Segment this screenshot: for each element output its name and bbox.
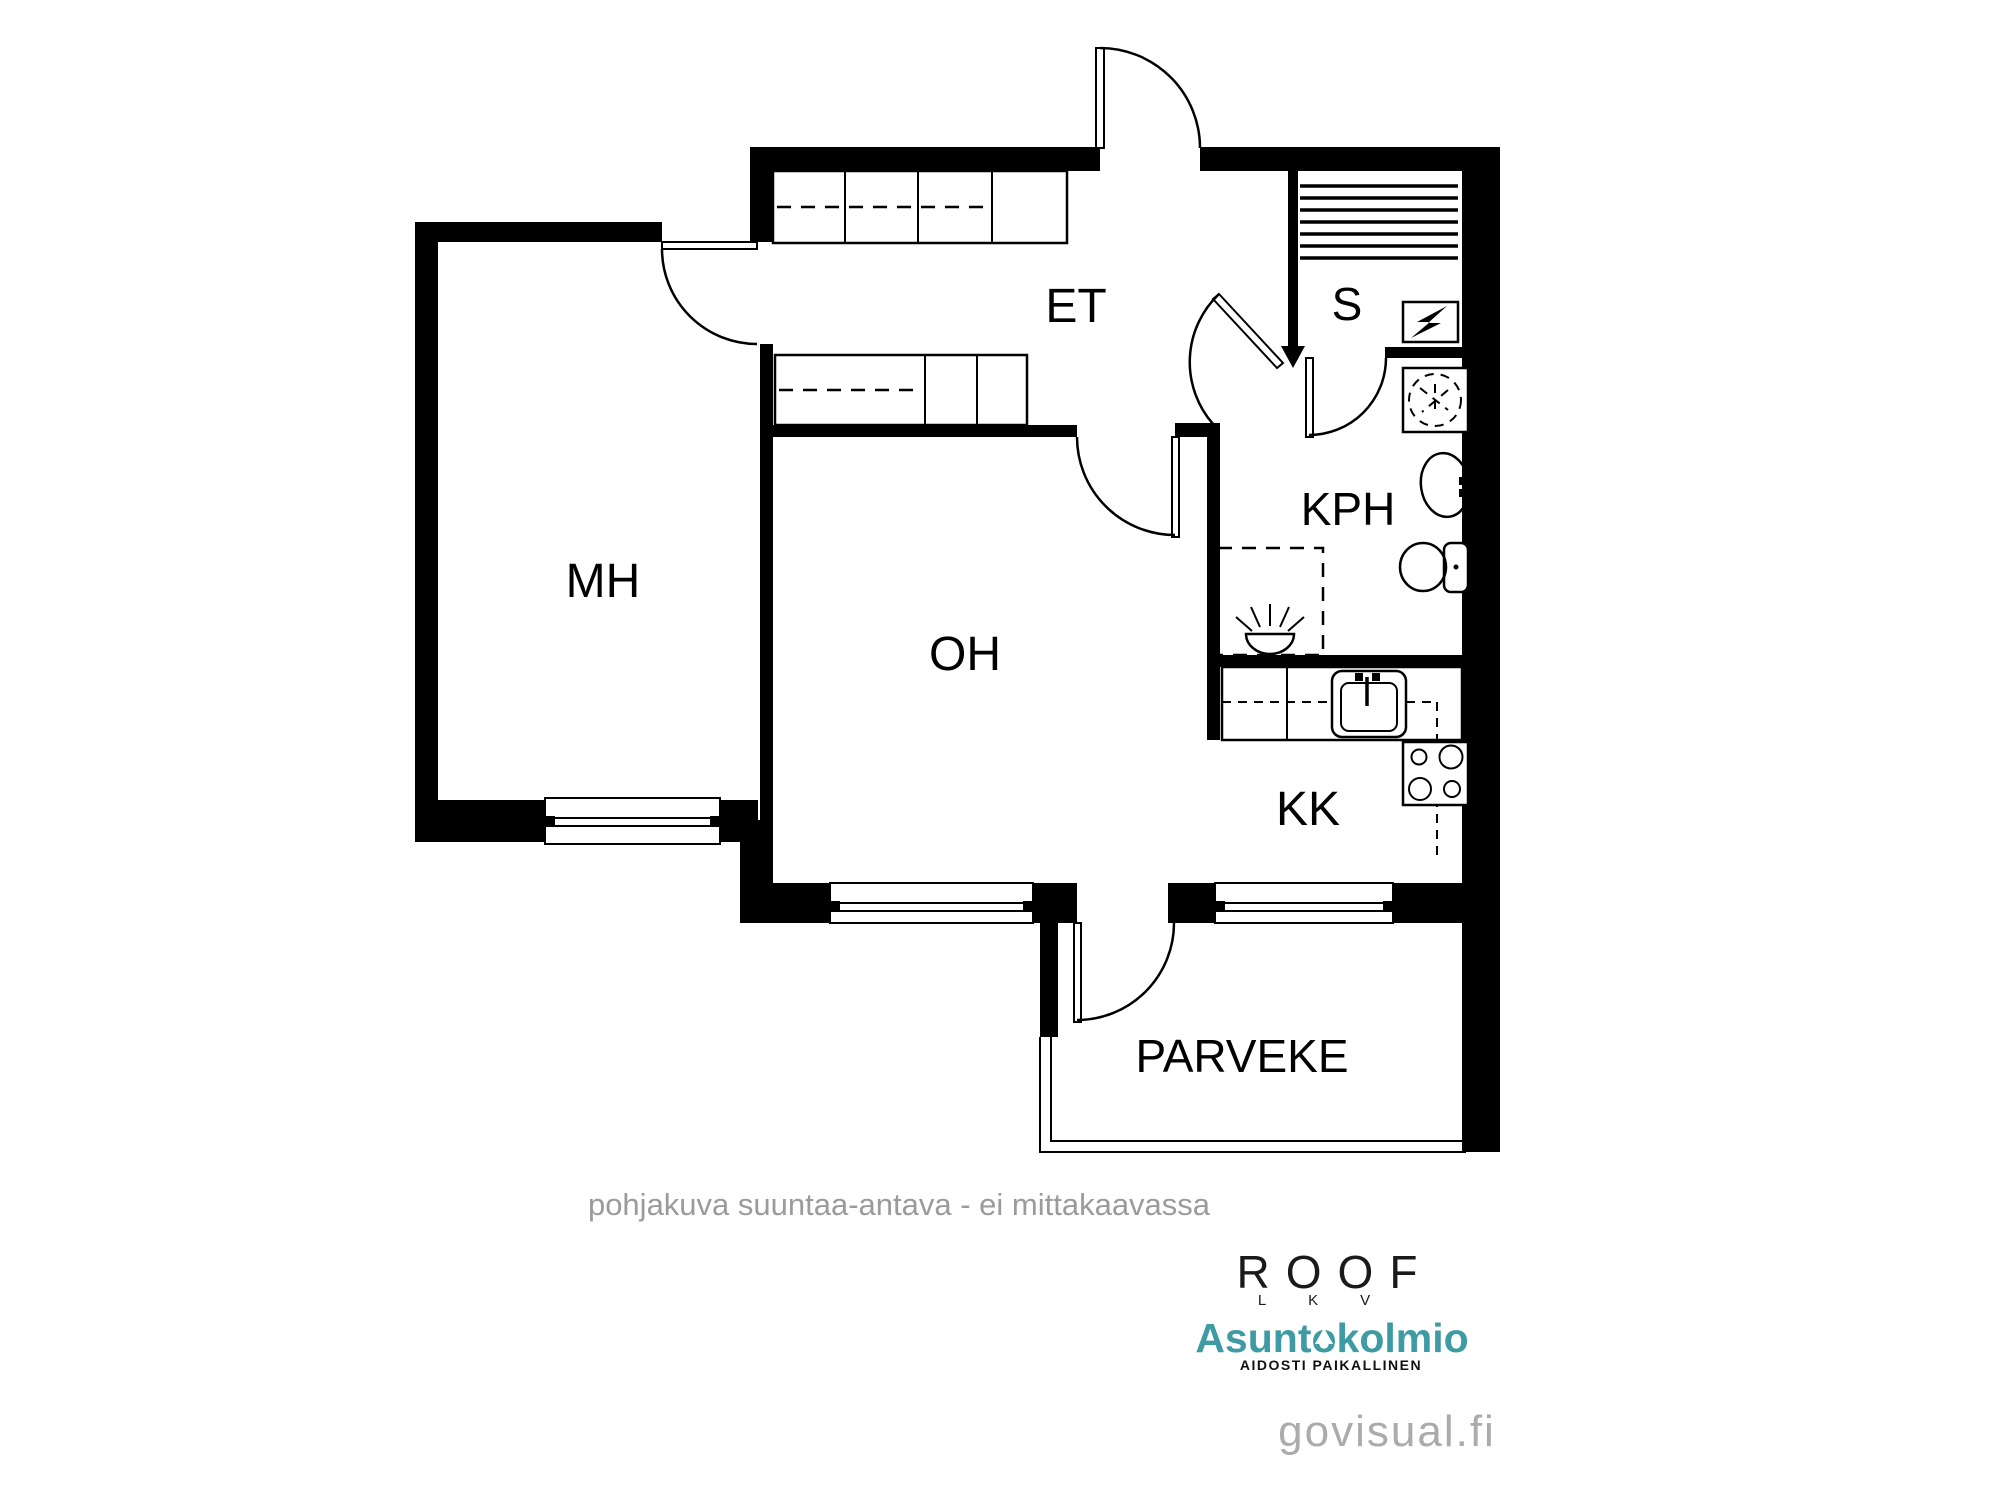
washing-machine-icon	[1403, 368, 1468, 432]
sauna-heater-icon	[1403, 302, 1458, 342]
door-kph	[1190, 294, 1283, 424]
floorplan-page: MH OH ET S KPH KK PARVEKE pohjakuva suun…	[0, 0, 2000, 1500]
room-label-oh: OH	[929, 628, 1001, 681]
watermark-text: govisual.fi	[1278, 1407, 1496, 1456]
room-label-kk: KK	[1276, 783, 1340, 836]
roof-logo-name: ROOF	[1237, 1246, 1434, 1298]
room-label-mh: MH	[566, 555, 641, 608]
roof-logo-sub: LKV	[1258, 1292, 1412, 1309]
room-label-kph: KPH	[1301, 483, 1396, 535]
door-balcony	[1074, 923, 1174, 1022]
kitchen-sink-icon	[1332, 671, 1406, 737]
disclaimer-text: pohjakuva suuntaa-antava - ei mittakaava…	[588, 1187, 1211, 1222]
room-label-s: S	[1332, 278, 1363, 330]
asuntokolmio-logo: Asuntokolmio AIDOSTI PAIKALLINEN	[1195, 1315, 1468, 1373]
shower-icon	[1218, 548, 1323, 655]
roof-logo: ROOF LKV	[1237, 1246, 1434, 1309]
door-mh	[662, 242, 757, 344]
stove-icon	[1403, 742, 1468, 805]
toilet-icon	[1400, 543, 1468, 592]
wall-stub-miter	[1281, 346, 1305, 368]
room-label-parveke: PARVEKE	[1135, 1030, 1348, 1082]
room-label-et: ET	[1045, 280, 1106, 333]
door-oh	[1077, 437, 1179, 537]
window-oh	[830, 883, 1033, 923]
entrance-door	[1096, 48, 1200, 148]
floor-plan-canvas: MH OH ET S KPH KK PARVEKE pohjakuva suun…	[0, 0, 2000, 1500]
window-mh	[545, 798, 720, 844]
closet-row-top	[773, 171, 1067, 243]
closet-row-lower	[775, 355, 1027, 425]
asuntokolmio-logo-text: Asuntokolmio	[1195, 1315, 1468, 1361]
asuntokolmio-tagline: AIDOSTI PAIKALLINEN	[1240, 1357, 1422, 1373]
window-kk	[1215, 883, 1393, 923]
sauna-benches	[1300, 186, 1458, 258]
door-sauna	[1306, 358, 1386, 437]
